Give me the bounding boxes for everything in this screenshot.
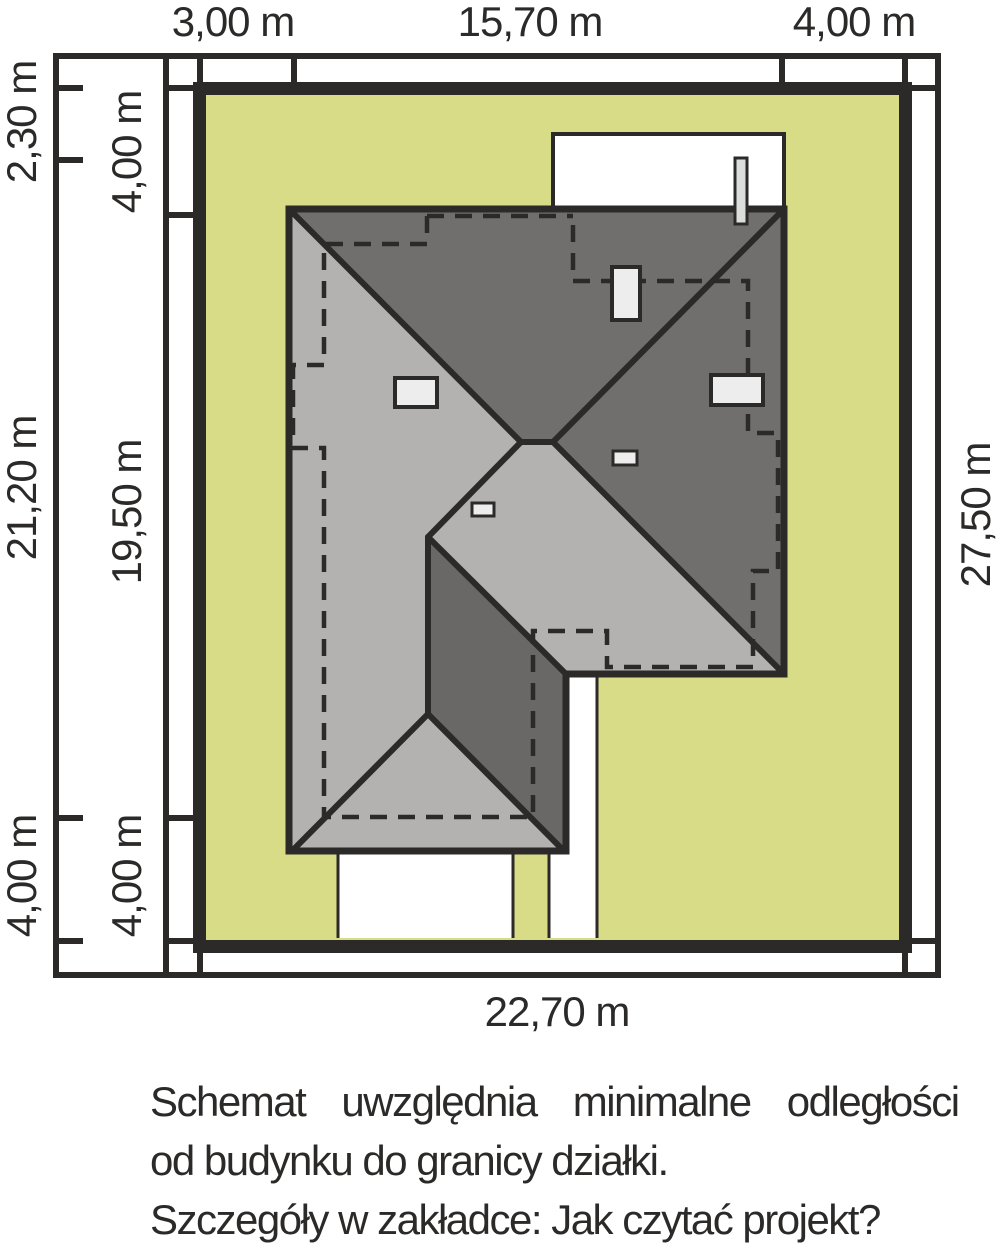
chimney [735, 158, 747, 224]
tick-bottom-plot-right [902, 948, 908, 978]
tick-top-roof-left [291, 53, 297, 83]
roof-vent-south [472, 503, 494, 516]
dim-label-top-right: 4,00 m [793, 0, 915, 46]
tick-louter-top [53, 85, 83, 91]
roof-vent-east [613, 451, 637, 465]
dim-label-left-inner-1: 4,00 m [103, 91, 151, 213]
skylight-north [612, 267, 640, 320]
dimension-line-right [935, 53, 941, 978]
dimension-line-left-inner [163, 53, 169, 978]
dimension-line-top [53, 53, 941, 59]
terrace [338, 853, 513, 938]
entrance-path-upper [566, 675, 597, 855]
tick-linner-bottom [163, 938, 195, 944]
tick-bottom-plot-left [197, 948, 203, 978]
dim-label-left-outer-1: 2,30 m [0, 61, 46, 183]
dim-label-left-outer-3: 4,00 m [0, 815, 46, 937]
entrance-path-lower [549, 853, 597, 938]
skylight-west [395, 378, 437, 407]
dim-label-left-inner-3: 4,00 m [103, 815, 151, 937]
dim-label-right: 27,50 m [952, 443, 1000, 588]
dim-label-left-inner-2: 19,50 m [103, 440, 151, 585]
caption-line-2: od budynku do granicy działki. [150, 1131, 959, 1190]
caption-line-3: Szczegóły w zakładce: Jak czytać projekt… [150, 1190, 959, 1249]
dimension-line-left-outer [53, 53, 59, 978]
tick-linner-top [163, 85, 195, 91]
tick-louter-2 [53, 157, 83, 163]
caption-text: Schemat uwzględnia minimalne odległości … [150, 1072, 959, 1249]
driveway-apron [553, 134, 784, 209]
tick-linner-roof-top [163, 212, 195, 218]
tick-top-plot-left [197, 53, 203, 83]
dim-label-top-center: 15,70 m [458, 0, 603, 46]
dim-label-top-left: 3,00 m [172, 0, 294, 46]
caption-line-1: Schemat uwzględnia minimalne odległości [150, 1072, 959, 1131]
tick-right-bottom [911, 938, 941, 944]
tick-top-roof-right [779, 53, 785, 83]
tick-right-top [911, 85, 941, 91]
tick-louter-3 [53, 815, 83, 821]
dim-label-left-outer-2: 21,20 m [0, 416, 46, 561]
dim-label-bottom: 22,70 m [485, 988, 630, 1036]
tick-louter-bottom [53, 938, 83, 944]
skylight-east [711, 375, 763, 405]
site-plan-diagram: 3,00 m 15,70 m 4,00 m 2,30 m 21,20 m 4,0… [0, 0, 1000, 1252]
tick-linner-wall-bottom [163, 815, 195, 821]
dimension-line-bottom [53, 972, 941, 978]
tick-top-plot-right [902, 53, 908, 83]
